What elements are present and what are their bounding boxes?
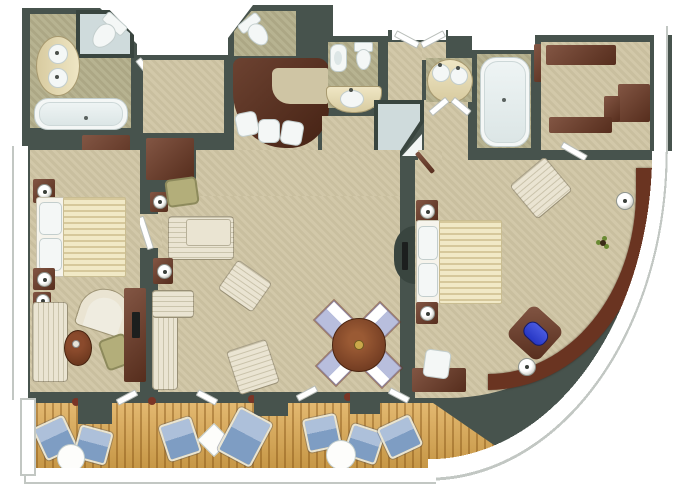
faucet [456,66,460,70]
hull-trim-right [654,26,668,152]
olive-chair [164,176,200,208]
hull-trim-left [12,146,28,400]
dressing-corridor [143,60,224,133]
coffee-table [64,330,92,366]
veranda-railing [24,468,436,484]
bathtub-basin [484,61,526,143]
floor-plan [0,0,680,486]
dining-table-centerpiece [354,340,364,350]
table-lamp [153,195,167,209]
wardrobe [618,84,650,122]
entry-hall-corridor [388,42,422,100]
hull-curve-railing [428,151,680,486]
bidet-basin [334,51,342,65]
pillow [39,238,62,271]
wardrobe [546,45,616,65]
toilet [354,42,371,70]
bar-stool [234,110,261,138]
bathtub-drain [84,116,88,120]
tv [402,242,408,270]
sofa [32,302,68,382]
privacy-partition [254,392,288,416]
wardrobe [146,138,194,180]
bar-stool [258,119,280,143]
faucet [349,88,353,92]
wardrobe [549,117,612,133]
table-lamp [157,264,172,279]
sectional-sofa-seat [186,219,231,246]
round-table [326,440,356,470]
privacy-partition [78,398,112,424]
bathtub-basin [39,102,123,126]
bidet [330,44,347,72]
potted-plant [148,397,156,405]
king-bed [36,197,124,275]
sink [340,90,364,108]
veranda-partition-end [20,398,36,476]
bar-inner-floor [272,68,328,104]
faucet [55,75,59,79]
table-decor [72,340,80,348]
duvet [63,197,126,277]
bar-stool [279,119,305,146]
faucet [438,63,442,67]
corner-sofa [152,290,194,318]
table-lamp [37,272,52,287]
toilet-bowl [356,49,371,70]
living-room-floor [322,116,374,154]
pillow [39,202,62,235]
faucet [55,51,59,55]
bathtub-drain [502,98,506,102]
tv [132,312,140,338]
privacy-partition [350,392,380,414]
